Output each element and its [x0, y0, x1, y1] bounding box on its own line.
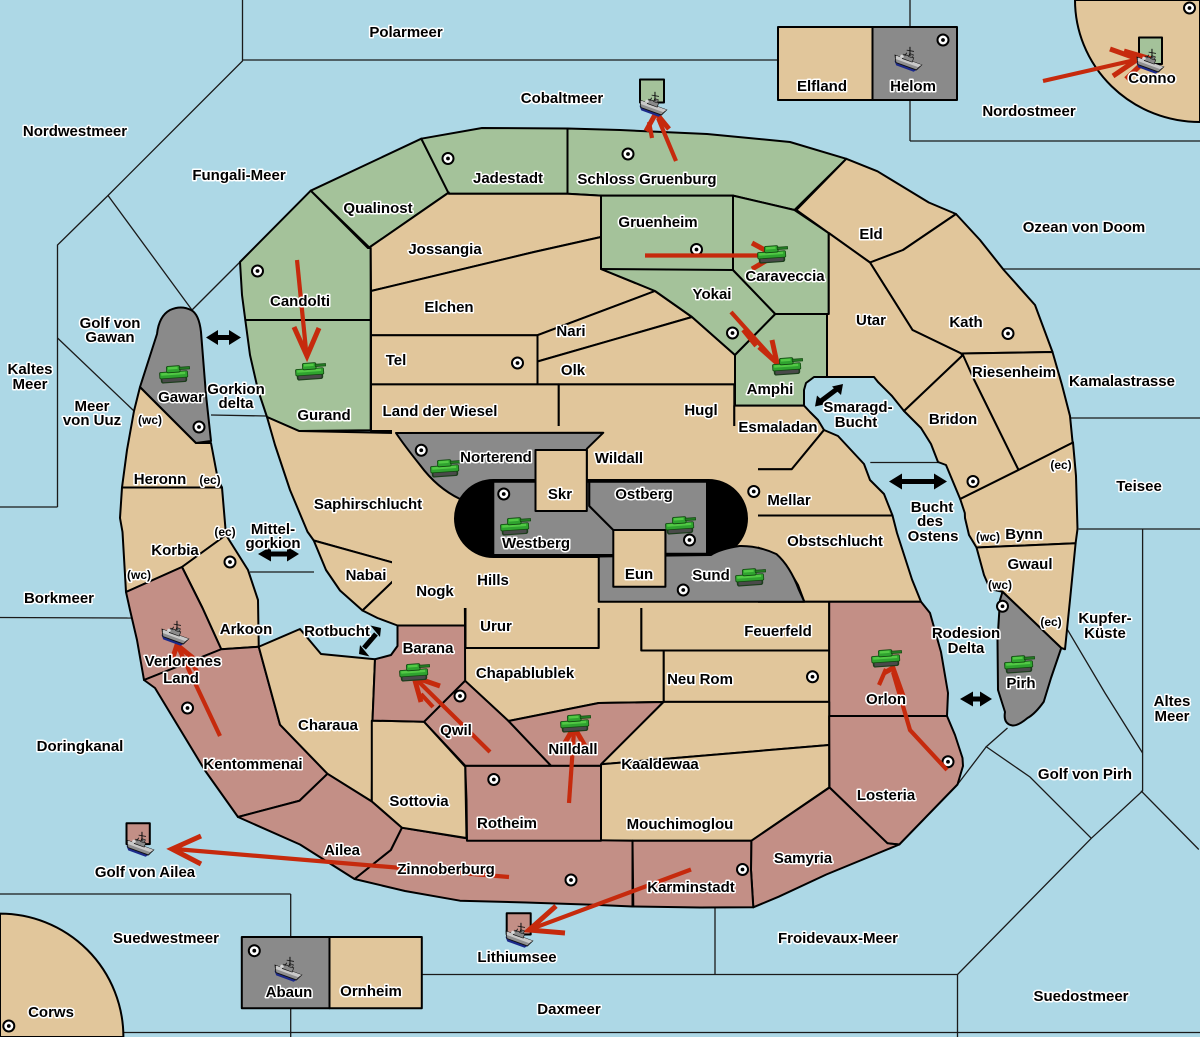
svg-text:Hills: Hills — [477, 572, 509, 589]
svg-text:Bucht: Bucht — [835, 414, 878, 431]
svg-text:Gawan: Gawan — [85, 329, 134, 346]
svg-text:Caraveccia: Caraveccia — [745, 268, 825, 285]
svg-text:(ec): (ec) — [1040, 615, 1061, 629]
svg-text:Utar: Utar — [856, 312, 886, 329]
svg-text:Kentommenai: Kentommenai — [203, 756, 302, 773]
svg-text:Golf von Ailea: Golf von Ailea — [95, 864, 196, 881]
svg-text:Amphi: Amphi — [747, 381, 794, 398]
svg-text:Barana: Barana — [403, 640, 455, 657]
svg-text:Elfland: Elfland — [797, 78, 847, 95]
svg-text:Feuerfeld: Feuerfeld — [744, 623, 812, 640]
svg-text:Golf von Pirh: Golf von Pirh — [1038, 766, 1132, 783]
svg-text:Cobaltmeer: Cobaltmeer — [521, 90, 604, 107]
svg-text:Bynn: Bynn — [1005, 526, 1043, 543]
svg-text:delta: delta — [218, 395, 254, 412]
svg-text:Daxmeer: Daxmeer — [537, 1001, 601, 1018]
svg-text:Ailea: Ailea — [324, 842, 361, 859]
svg-text:Land der Wiesel: Land der Wiesel — [383, 403, 498, 420]
svg-text:Meer: Meer — [1154, 708, 1189, 725]
svg-text:Polarmeer: Polarmeer — [369, 24, 443, 41]
svg-text:Nogk: Nogk — [416, 583, 454, 600]
svg-text:Gwaul: Gwaul — [1007, 556, 1052, 573]
svg-text:Arkoon: Arkoon — [220, 621, 273, 638]
svg-text:Ostens: Ostens — [908, 528, 959, 545]
svg-text:(ec): (ec) — [199, 473, 220, 487]
svg-text:Losteria: Losteria — [857, 787, 916, 804]
svg-text:Ozean von Doom: Ozean von Doom — [1023, 219, 1146, 236]
svg-text:Saphirschlucht: Saphirschlucht — [314, 496, 422, 513]
svg-text:Wildall: Wildall — [595, 450, 643, 467]
svg-text:Bridon: Bridon — [929, 411, 977, 428]
svg-text:Eun: Eun — [625, 566, 653, 583]
svg-text:Kamalastrasse: Kamalastrasse — [1069, 373, 1175, 390]
svg-text:Esmaladan: Esmaladan — [738, 419, 817, 436]
svg-text:Delta: Delta — [948, 640, 985, 657]
svg-text:(wc): (wc) — [127, 568, 151, 582]
svg-text:Gruenheim: Gruenheim — [618, 214, 697, 231]
svg-text:Orlon: Orlon — [866, 691, 906, 708]
svg-text:Obstschlucht: Obstschlucht — [787, 533, 883, 550]
svg-text:Verlorenes: Verlorenes — [145, 653, 222, 670]
svg-text:Candolti: Candolti — [270, 293, 330, 310]
svg-text:Sottovia: Sottovia — [389, 793, 449, 810]
svg-text:gorkion: gorkion — [246, 535, 301, 552]
svg-text:Samyria: Samyria — [774, 850, 833, 867]
svg-text:Mellar: Mellar — [767, 492, 811, 509]
svg-text:Rotbucht: Rotbucht — [304, 623, 370, 640]
svg-text:von Uuz: von Uuz — [63, 412, 121, 429]
svg-text:Conno: Conno — [1128, 70, 1175, 87]
svg-text:Qualinost: Qualinost — [343, 200, 412, 217]
svg-text:Mouchimoglou: Mouchimoglou — [627, 816, 734, 833]
svg-text:Pirh: Pirh — [1006, 675, 1035, 692]
svg-text:Zinnoberburg: Zinnoberburg — [397, 861, 495, 878]
svg-text:Elchen: Elchen — [424, 299, 473, 316]
svg-text:Nari: Nari — [556, 323, 585, 340]
svg-text:Land: Land — [163, 670, 199, 687]
svg-text:Urur: Urur — [480, 618, 512, 635]
svg-text:Eld: Eld — [859, 226, 882, 243]
svg-text:Skr: Skr — [548, 486, 572, 503]
svg-text:Helom: Helom — [890, 78, 936, 95]
svg-text:Nabai: Nabai — [346, 567, 387, 584]
svg-text:Sund: Sund — [692, 567, 730, 584]
svg-text:Rotheim: Rotheim — [477, 815, 537, 832]
svg-text:Korbia: Korbia — [151, 542, 199, 559]
svg-text:Qwil: Qwil — [440, 722, 472, 739]
svg-text:Norterend: Norterend — [460, 449, 532, 466]
svg-text:Gurand: Gurand — [297, 407, 350, 424]
svg-text:Jossangia: Jossangia — [408, 241, 482, 258]
svg-text:Tel: Tel — [386, 352, 407, 369]
svg-text:Nilldall: Nilldall — [548, 741, 597, 758]
svg-text:Froidevaux-Meer: Froidevaux-Meer — [778, 930, 898, 947]
svg-text:Ornheim: Ornheim — [340, 983, 402, 1000]
svg-text:Lithiumsee: Lithiumsee — [477, 949, 556, 966]
svg-text:Hugl: Hugl — [684, 402, 717, 419]
svg-text:Kath: Kath — [949, 314, 982, 331]
svg-text:Nordwestmeer: Nordwestmeer — [23, 123, 127, 140]
svg-text:Heronn: Heronn — [134, 471, 187, 488]
svg-text:(wc): (wc) — [988, 578, 1012, 592]
svg-text:Borkmeer: Borkmeer — [24, 590, 94, 607]
svg-text:Teisee: Teisee — [1116, 478, 1162, 495]
svg-text:Nordostmeer: Nordostmeer — [982, 103, 1076, 120]
svg-text:Jadestadt: Jadestadt — [473, 170, 543, 187]
svg-text:Neu Rom: Neu Rom — [667, 671, 733, 688]
svg-text:(ec): (ec) — [1050, 458, 1071, 472]
svg-text:Olk: Olk — [561, 362, 586, 379]
svg-text:Karminstadt: Karminstadt — [647, 879, 735, 896]
svg-text:Westberg: Westberg — [502, 535, 570, 552]
svg-text:Yokai: Yokai — [693, 286, 732, 303]
svg-text:Kaaldewaa: Kaaldewaa — [621, 756, 699, 773]
svg-text:Corws: Corws — [28, 1004, 74, 1021]
svg-text:(ec): (ec) — [214, 525, 235, 539]
svg-text:Ostberg: Ostberg — [615, 486, 673, 503]
svg-text:Charaua: Charaua — [298, 717, 359, 734]
svg-text:Suedwestmeer: Suedwestmeer — [113, 930, 219, 947]
svg-text:Doringkanal: Doringkanal — [37, 738, 124, 755]
svg-text:Suedostmeer: Suedostmeer — [1033, 988, 1128, 1005]
svg-text:(wc): (wc) — [138, 413, 162, 427]
svg-text:Gawar: Gawar — [158, 389, 204, 406]
svg-text:Abaun: Abaun — [266, 984, 313, 1001]
svg-text:Riesenheim: Riesenheim — [972, 364, 1056, 381]
svg-text:(wc): (wc) — [976, 530, 1000, 544]
svg-text:Fungali-Meer: Fungali-Meer — [192, 167, 286, 184]
svg-text:Meer: Meer — [12, 376, 47, 393]
svg-text:Küste: Küste — [1084, 625, 1126, 642]
svg-text:Chapablublek: Chapablublek — [476, 665, 575, 682]
svg-text:Schloss Gruenburg: Schloss Gruenburg — [577, 171, 716, 188]
